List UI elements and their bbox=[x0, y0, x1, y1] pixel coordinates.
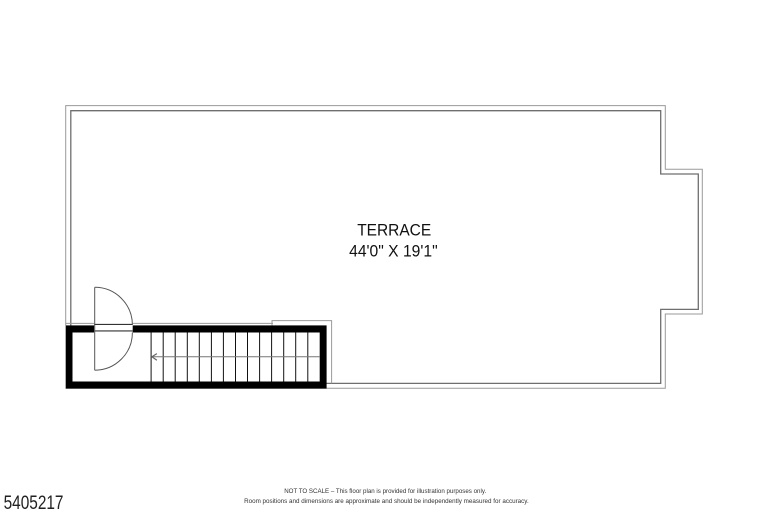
svg-text:TERRACE: TERRACE bbox=[357, 222, 431, 240]
svg-text:NOT TO SCALE – This floor plan: NOT TO SCALE – This floor plan is provid… bbox=[284, 488, 486, 495]
svg-text:Room positions and dimensions: Room positions and dimensions are approx… bbox=[244, 498, 529, 505]
svg-text:5405217: 5405217 bbox=[4, 492, 64, 512]
svg-text:44'0" X 19'1": 44'0" X 19'1" bbox=[349, 243, 438, 261]
